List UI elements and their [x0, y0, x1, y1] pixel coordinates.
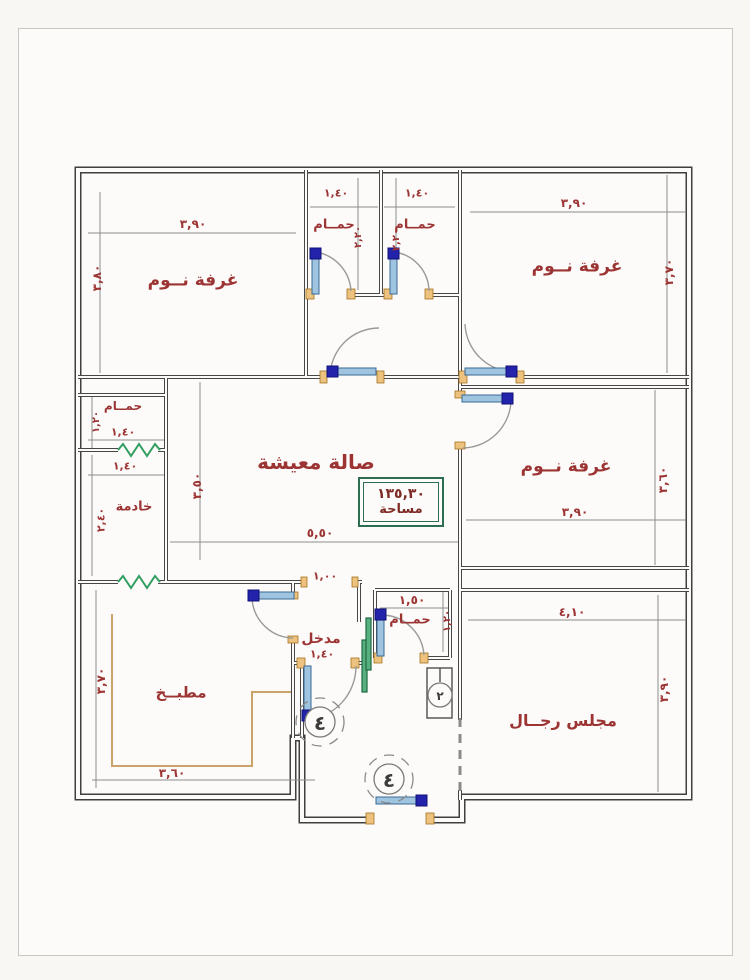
dim-kitchen-width: ٣,٦٠ [159, 767, 186, 779]
room-label-bedroom-top-right: غرفة نــوم [532, 259, 623, 276]
room-label-bedroom-top-left: غرفة نــوم [148, 273, 239, 290]
window-zigzag-maid-bath [118, 444, 160, 456]
dim-entrance-width: ١,٤٠ [310, 649, 334, 660]
dim-bathroom-top-2-width: ١,٤٠ [405, 188, 429, 199]
fan-symbol-number-1: ٤ [314, 711, 326, 735]
room-label-majlis: مجلس رجــال [509, 713, 617, 729]
dim-maid-room-height: ٢,٤٠ [96, 508, 107, 532]
area-badge: ١٣٥,٣٠ مساحة [358, 477, 444, 527]
room-label-bathroom-top-1: حمــام [313, 219, 354, 232]
room-label-maid-bathroom: حمــام [104, 400, 142, 412]
dim-living-room-height: ٣,٥٠ [191, 473, 203, 500]
dim-living-room-width: ٥,٥٠ [307, 527, 334, 539]
dim-bathroom-small-width: ١,٥٠ [399, 594, 426, 606]
sliding-door-green [362, 618, 371, 692]
room-label-entrance: مدخل [301, 632, 340, 646]
dim-majlis-height: ٣,٩٠ [658, 676, 670, 703]
dim-bathroom-small-height: ١,٢٠ [443, 610, 453, 632]
dim-living-opening: ١,٠٠ [313, 571, 337, 582]
floor-plan-page: غرفة نــوم حمــام حمــام غرفة نــوم غرفة… [0, 0, 750, 980]
dim-bedroom-right-height: ٣,٦٠ [657, 467, 669, 494]
dim-bedroom-top-left-width: ٣,٩٠ [180, 218, 207, 230]
room-label-maid-room: خادمة [116, 501, 153, 514]
dim-maid-bathroom-width: ١,٤٠ [111, 427, 135, 438]
dim-bedroom-top-right-width: ٣,٩٠ [561, 197, 588, 209]
dim-bathroom-top-1-height: ٢,٢٠ [354, 226, 364, 248]
dim-bathroom-top-2-height: ٢,٢٠ [392, 229, 402, 251]
dim-bedroom-top-left-height: ٣,٨٠ [91, 265, 103, 292]
dim-bathroom-top-1-width: ١,٤٠ [324, 188, 348, 199]
room-label-living-room: صالة معيشة [257, 452, 375, 472]
room-label-bedroom-right: غرفة نــوم [521, 459, 612, 476]
fan-symbol-number-2: ٤ [383, 768, 395, 792]
area-label: مساحة [379, 503, 422, 517]
area-badge-inner: ١٣٥,٣٠ مساحة [363, 482, 439, 522]
room-label-bathroom-small: حمــام [389, 614, 430, 627]
dim-bedroom-right-width: ٣,٩٠ [562, 506, 589, 518]
dim-maid-room-width: ١,٤٠ [113, 461, 137, 472]
dim-bedroom-top-right-height: ٣,٧٠ [663, 259, 675, 286]
room-label-kitchen: مطبــخ [155, 686, 206, 701]
area-value: ١٣٥,٣٠ [377, 487, 425, 502]
door-leaves [248, 248, 517, 806]
dim-majlis-width: ٤,١٠ [559, 606, 586, 618]
dim-maid-bathroom-height: ١,٢٠ [92, 411, 102, 433]
window-zigzag-kitchen [118, 576, 160, 588]
dim-kitchen-height: ٣,٧٠ [95, 668, 107, 695]
shaft-symbol-number: ٢ [436, 689, 443, 703]
